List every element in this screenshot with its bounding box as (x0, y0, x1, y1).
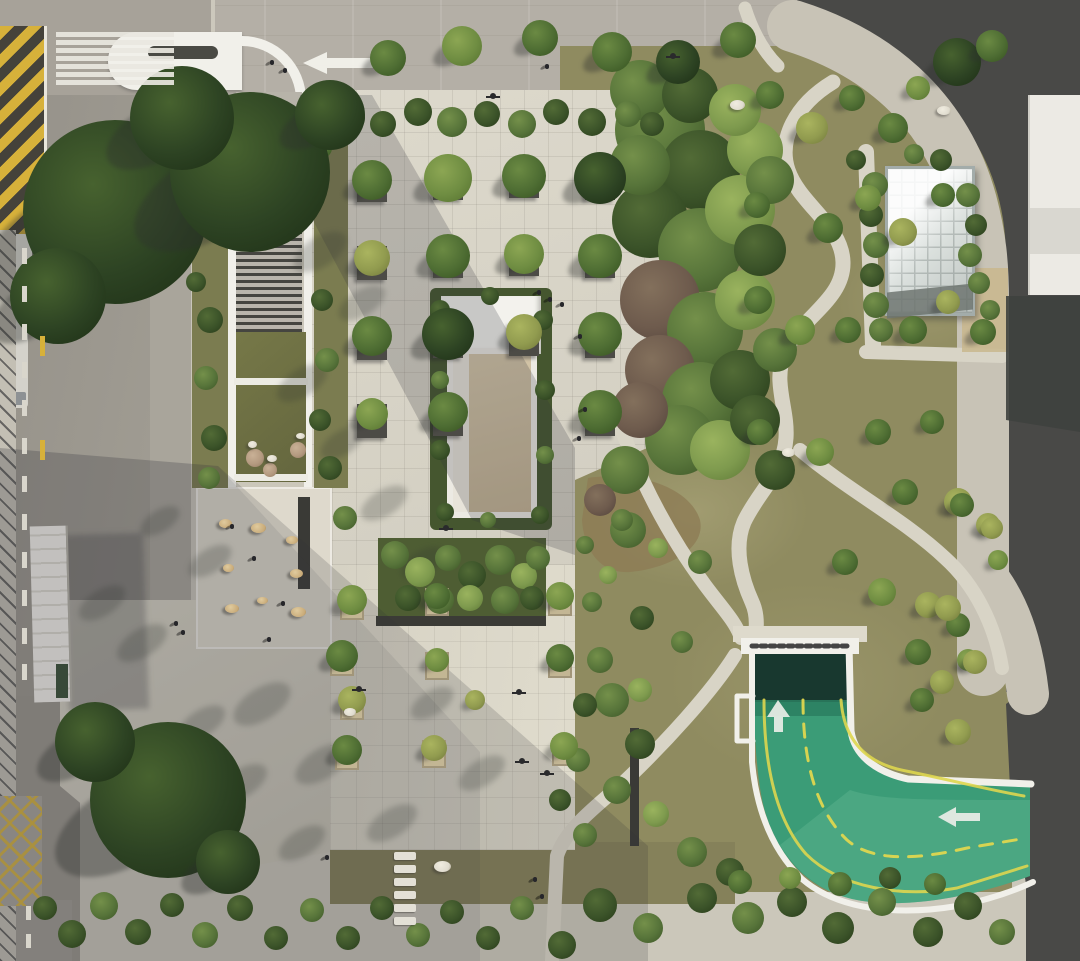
plaza-hedge (508, 110, 536, 138)
yellow-curb-tick (40, 336, 45, 356)
meadow-bush (671, 631, 693, 653)
seating-boulder (251, 523, 266, 533)
garden-tree (756, 81, 784, 109)
plaza-tree (574, 152, 626, 204)
curb-tick (26, 934, 31, 948)
meadow-bush (582, 592, 602, 612)
street-tree (720, 22, 756, 58)
sunken-dry-tree (290, 442, 306, 458)
big-tree (295, 80, 365, 150)
rock (937, 106, 951, 115)
bottom-shrub-band (777, 887, 807, 917)
person (283, 68, 287, 73)
crosswalk-stripe (56, 32, 174, 37)
curb-tick (22, 590, 27, 606)
person (270, 60, 274, 65)
garden-tree (931, 183, 955, 207)
garden-shrub-mass (709, 84, 761, 136)
garden-tree (832, 549, 858, 575)
portal-bush (625, 729, 655, 759)
garden-tree (865, 419, 891, 445)
street-tree (522, 20, 558, 56)
courtyard-edge-plants (536, 446, 554, 464)
bottom-shrub-band (227, 895, 253, 921)
curb-tick (22, 400, 27, 416)
pavilion-bush (965, 214, 987, 236)
street-lamp (544, 770, 550, 776)
seating-boulder (257, 597, 268, 604)
yellow-curb-tick (40, 440, 45, 460)
garden-tree (747, 419, 773, 445)
curb-tick (26, 906, 31, 920)
dappled-shadow (405, 680, 458, 726)
pavilion-bush (904, 144, 924, 164)
lower-plaza-tree (337, 585, 367, 615)
garden-tree (981, 517, 1003, 539)
person (533, 877, 537, 882)
stair-strip-bush (309, 409, 331, 431)
garden-tree (963, 650, 987, 674)
garden-tree (796, 112, 828, 144)
plaza-tree (428, 392, 468, 432)
plaza-hedge (615, 101, 641, 127)
rock (434, 861, 451, 872)
courtyard-edge-plants (481, 287, 499, 305)
garden-tree (835, 317, 861, 343)
bottom-shrub-band (192, 922, 218, 948)
meadow-bush (576, 536, 594, 554)
bottom-shrub-band (125, 919, 151, 945)
sunken-dry-tree (263, 463, 277, 477)
crosswalk-stripe (56, 56, 174, 61)
bottom-shrub-band (264, 926, 288, 950)
bottom-shrub-band (633, 913, 663, 943)
garden-tree (910, 688, 934, 712)
bottom-shrub-band (336, 926, 360, 950)
street-tree (592, 32, 632, 72)
person (181, 630, 185, 635)
plaza-hedge (474, 101, 500, 127)
bottom-shrub-band (90, 892, 118, 920)
dappled-shadow (73, 578, 131, 628)
person (267, 637, 271, 642)
stepping-stone (394, 878, 416, 886)
plaza-hedge (370, 111, 396, 137)
courtyard-edge-plants (430, 440, 450, 460)
plaza-hedge (640, 112, 664, 136)
lower-plaza-tree (546, 644, 574, 672)
garden-tree (930, 670, 954, 694)
pavilion-bush (958, 243, 982, 267)
person (174, 621, 178, 626)
seating-boulder (225, 604, 239, 613)
plaza-tree (424, 154, 472, 202)
garden-shrub-mass (734, 224, 786, 276)
plaza-hedge (437, 107, 467, 137)
bottom-shrub-band (868, 888, 896, 916)
street-lamp (670, 53, 676, 59)
pavilion-bush (860, 263, 884, 287)
curb-tick (22, 248, 27, 264)
big-tree (196, 830, 260, 894)
dappled-shadow (355, 478, 413, 528)
planter-shrubs (435, 545, 461, 571)
rock (344, 708, 356, 716)
bottom-shrub-band (33, 896, 57, 920)
street-lamp (519, 758, 525, 764)
bottom-shrub-band (406, 923, 430, 947)
dappled-shadow (136, 500, 185, 542)
seating-boulder (223, 564, 234, 572)
garden-tree (785, 315, 815, 345)
bottom-shrub-band (732, 902, 764, 934)
lower-plaza-tree (425, 648, 449, 672)
stepping-stone (394, 852, 416, 860)
person (577, 436, 581, 441)
curb-tick (22, 476, 27, 492)
pavilion-bush (846, 150, 866, 170)
person (252, 556, 256, 561)
crosswalk-stripe (56, 80, 174, 85)
curb-tick (22, 514, 27, 530)
garden-tree (744, 192, 770, 218)
person (548, 297, 552, 302)
bottom-shrub-band (924, 873, 946, 895)
person (325, 855, 329, 860)
bottom-shrub-band (687, 883, 717, 913)
stair-strip-bush (315, 348, 339, 372)
lower-plaza-tree (332, 735, 362, 765)
garden-shrub-mass (584, 484, 616, 516)
seating-boulder (291, 607, 306, 617)
planter-shrubs (526, 546, 550, 570)
garden-tree (935, 595, 961, 621)
garden-tree (806, 438, 834, 466)
garden-tree (970, 319, 996, 345)
portal-bush (587, 647, 613, 673)
stepping-stone (394, 904, 416, 912)
stepping-stone (394, 917, 416, 925)
meadow-bush (648, 538, 668, 558)
stair-strip-bush (311, 289, 333, 311)
stair-strip-bush (333, 506, 357, 530)
plaza-tree (578, 390, 622, 434)
sunken-dry-tree (246, 449, 264, 467)
garden-tree (899, 316, 927, 344)
bottom-shrub-band (583, 888, 617, 922)
courtyard-edge-plants (431, 371, 449, 389)
bottom-shrub-band (989, 919, 1015, 945)
rock (730, 100, 745, 110)
garden-tree (906, 76, 930, 100)
garden-tree (744, 286, 772, 314)
lower-plaza-tree (424, 583, 450, 609)
bottom-shrub-band (879, 867, 901, 889)
garden-tree (945, 719, 971, 745)
plaza-hedge (543, 99, 569, 125)
person (560, 302, 564, 307)
curb-tick (22, 438, 27, 454)
garden-tree (920, 410, 944, 434)
portal-bush (677, 837, 707, 867)
garden-tree (855, 185, 881, 211)
plaza-tree (426, 234, 470, 278)
rock (782, 448, 795, 457)
rock (267, 455, 277, 462)
plaza-tree (352, 316, 392, 356)
plaza-tree (502, 154, 546, 198)
bottom-shrub-band (913, 917, 943, 947)
garden-tree (839, 85, 865, 111)
pavilion-bush (980, 300, 1000, 320)
garden-tree (950, 493, 974, 517)
bottom-shrub-band (476, 926, 500, 950)
big-tree (55, 702, 135, 782)
planter-shrubs (457, 585, 483, 611)
dappled-shadow (111, 617, 173, 670)
courtyard-edge-plants (531, 506, 549, 524)
plaza-tree (578, 234, 622, 278)
planter-shrubs (491, 586, 519, 614)
bottom-shrub-band (779, 867, 801, 889)
planter-shrubs (381, 541, 409, 569)
rock (248, 441, 257, 448)
street-tree (370, 40, 406, 76)
scene-items (0, 0, 1080, 961)
courtyard-edge-plants (480, 512, 496, 528)
garden-tree (813, 213, 843, 243)
plaza-tree (422, 308, 474, 360)
bottom-shrub-band (954, 892, 982, 920)
lower-plaza-tree (550, 732, 578, 760)
portal-bush (643, 801, 669, 827)
person (583, 407, 587, 412)
seating-boulder (286, 536, 298, 544)
portal-bush (573, 823, 597, 847)
stair-strip-bush (186, 272, 206, 292)
garden-tree (936, 290, 960, 314)
bottom-shrub-band (822, 912, 854, 944)
lower-plaza-tree (326, 640, 358, 672)
stepping-stone (394, 891, 416, 899)
meadow-bush (611, 509, 633, 531)
person (281, 601, 285, 606)
lower-plaza-tree (421, 735, 447, 761)
plaza-hedge (404, 98, 432, 126)
plaza-tree (352, 160, 392, 200)
garden-tree (889, 218, 917, 246)
plaza-tree (356, 398, 388, 430)
lower-plaza-tree (546, 582, 574, 610)
bottom-shrub-band (828, 872, 852, 896)
meadow-bush (688, 550, 712, 574)
curb-tick (22, 362, 27, 378)
stair-strip-bush (201, 425, 227, 451)
courtyard-edge-plants (436, 503, 454, 521)
portal-bush (573, 693, 597, 717)
curb-tick (22, 552, 27, 568)
rock (296, 433, 305, 439)
portal-bush (549, 789, 571, 811)
street-lamp (356, 686, 362, 692)
pavilion-bush (863, 292, 889, 318)
lower-plaza-tree (465, 690, 485, 710)
crosswalk-stripe (56, 64, 174, 69)
plaza-tree (354, 240, 390, 276)
portal-bush (603, 776, 631, 804)
dappled-shadow (361, 797, 423, 850)
street-tree (656, 40, 700, 84)
stair-strip-bush (197, 307, 223, 333)
street-lamp (443, 525, 449, 531)
planter-shrubs (395, 585, 421, 611)
dappled-shadow (183, 538, 236, 584)
pavilion-bush (968, 272, 990, 294)
bottom-shrub-band (160, 893, 184, 917)
stair-strip-bush (194, 366, 218, 390)
portal-bush (595, 683, 629, 717)
garden-tree (878, 113, 908, 143)
person (545, 64, 549, 69)
planter-shrubs (405, 557, 435, 587)
plaza-hedge (578, 108, 606, 136)
bottom-shrub-band (58, 920, 86, 948)
curb-tick (22, 286, 27, 302)
garden-tree (892, 479, 918, 505)
stair-strip-bush (318, 456, 342, 480)
plaza-tree (504, 234, 544, 274)
stepping-stone (394, 865, 416, 873)
dappled-shadow (226, 673, 297, 734)
bottom-shrub-band (548, 931, 576, 959)
portal-bush (628, 678, 652, 702)
bottom-shrub-band (440, 900, 464, 924)
street-lamp (490, 93, 496, 99)
street-tree (442, 26, 482, 66)
bottom-shrub-band (510, 896, 534, 920)
crosswalk-stripe (56, 72, 174, 77)
person (230, 524, 234, 529)
bottom-shrub-band (370, 896, 394, 920)
bottom-shrub-band (300, 898, 324, 922)
crosswalk-stripe (56, 48, 174, 53)
crosswalk-stripe (56, 40, 174, 45)
person (540, 894, 544, 899)
plaza-tree (578, 312, 622, 356)
dappled-shadow (453, 748, 511, 798)
garden-tree (905, 639, 931, 665)
pavilion-bush (869, 318, 893, 342)
curb-tick (22, 664, 27, 680)
person (537, 290, 541, 295)
courtyard-edge-plants (535, 380, 555, 400)
bottom-shrub-band (728, 870, 752, 894)
aerial-photo-canvas: Aerial drone photograph — landscaped civ… (0, 0, 1080, 961)
pavilion-bush (930, 149, 952, 171)
street-lamp (516, 689, 522, 695)
person (578, 334, 582, 339)
plaza-tree (506, 314, 542, 350)
meadow-bush (599, 566, 617, 584)
meadow-bush (630, 606, 654, 630)
garden-tree (868, 578, 896, 606)
stair-strip-bush (198, 467, 220, 489)
curb-tick (22, 324, 27, 340)
curb-tick (22, 628, 27, 644)
street-tree (976, 30, 1008, 62)
seating-boulder (290, 569, 303, 578)
pavilion-bush (956, 183, 980, 207)
planter-shrubs (485, 545, 515, 575)
garden-tree (988, 550, 1008, 570)
